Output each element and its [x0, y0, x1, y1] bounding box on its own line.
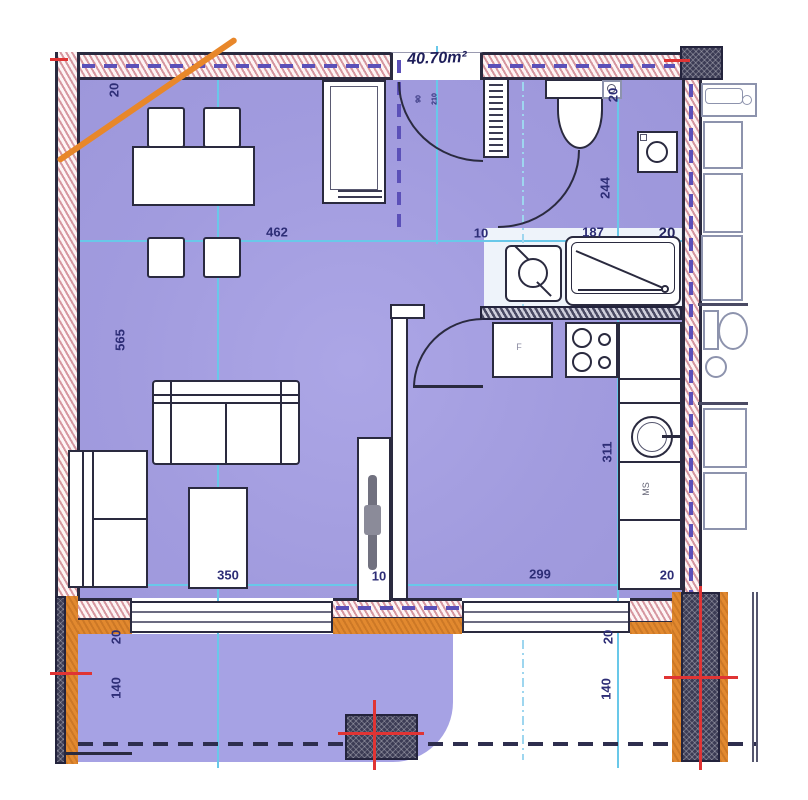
dim-balcony-right-wall: 20: [602, 630, 615, 644]
dim-wall-top-right: 20: [659, 226, 676, 241]
balcony-bottom-edge-left: [64, 752, 132, 755]
stove-burner: [572, 352, 592, 372]
wall-bath-kitchen: [480, 306, 682, 320]
neighbor-wall-line: [698, 303, 748, 306]
dim-wall-top-left: 20: [108, 83, 121, 97]
dim-kitchen-bottom: 299: [529, 568, 551, 581]
sofa-armrest-right: [280, 382, 282, 463]
window-glazing-line: [132, 611, 331, 613]
bathtub-drain: [661, 285, 669, 293]
wall-right-centerline: [689, 84, 693, 596]
survey-mark-vertical-center: [373, 700, 376, 770]
armchair-back-line: [82, 452, 84, 586]
stove: [565, 322, 618, 378]
balcony-edge-hatch-left: [55, 596, 66, 764]
survey-mark-top-left: [50, 58, 68, 61]
dim-balcony-left-wall: 20: [110, 630, 123, 644]
window-kitchen: [462, 601, 630, 633]
survey-mark-horizontal-center: [338, 732, 424, 735]
wall-top-left-centerline: [60, 64, 385, 68]
window-glazing-line: [464, 611, 628, 613]
neighbor-fixture-knob: [742, 95, 752, 105]
kitchen-sink-tap: [662, 435, 680, 438]
fridge-label: F: [516, 342, 522, 352]
sofa-armrest-left: [170, 382, 172, 463]
sill-orange-middle: [333, 618, 462, 634]
stove-burner: [572, 328, 592, 348]
dining-chair: [147, 107, 185, 148]
dim-partition: 10: [372, 570, 386, 583]
dim-bath-depth: 244: [599, 177, 612, 199]
armchair-cushion-divider: [94, 518, 146, 520]
window-living-left: [130, 601, 333, 633]
dining-table: [132, 146, 255, 206]
balcony-column-center: [345, 714, 418, 760]
partition-wall: [391, 317, 408, 600]
neighbor-fixture: [701, 235, 743, 301]
sofa-seat-divider: [225, 402, 227, 463]
floor-plan-canvas: 40.70m² 90 210 462 10 187 20 350 10 299 …: [0, 0, 808, 800]
neighbor-toilet-bowl: [718, 312, 748, 350]
stove-burner: [598, 356, 611, 369]
area-label: 40.70m²: [407, 49, 467, 69]
bathtub-bottom-line: [578, 289, 664, 291]
dim-balcony-right-depth: 140: [600, 678, 613, 700]
washbasin-bowl: [518, 258, 548, 288]
sofa-back-line: [154, 394, 298, 396]
stove-burner: [598, 333, 611, 346]
window-glazing-line: [132, 621, 331, 623]
bathroom-door-leaf: [489, 84, 503, 152]
neighbor-fixture: [703, 472, 747, 530]
toilet-cistern: [545, 79, 605, 99]
survey-mark-left: [50, 672, 92, 675]
dining-chair: [147, 237, 185, 278]
counter-divider: [620, 402, 680, 404]
neighbor-fixture-inner: [705, 88, 743, 104]
dim-hall-width: 10: [474, 227, 488, 240]
dim-kitchen-depth: 311: [601, 442, 614, 463]
washing-machine-panel: [640, 134, 647, 141]
neighbor-wall-line: [698, 402, 748, 405]
wall-top-right-centerline: [488, 64, 675, 68]
dim-bath-width: 187: [582, 226, 604, 239]
neighbor-fixture: [703, 173, 743, 233]
fridge: [492, 322, 553, 378]
dim-balcony-left-depth: 140: [110, 677, 123, 699]
entry-door-height-label: 210: [432, 93, 439, 105]
dim-wall-bottom-right: 20: [660, 569, 674, 582]
dining-chair: [203, 237, 241, 278]
dim-living-width: 462: [266, 226, 288, 239]
neighbor-basin: [705, 356, 727, 378]
balcony-rail-right: [752, 592, 758, 762]
wardrobe-rail: [338, 190, 382, 198]
wardrobe-inner-line: [330, 86, 378, 190]
balcony-edge-orange-left: [66, 596, 78, 764]
survey-mark-horizontal-right: [664, 676, 738, 679]
kitchen-counter-corner: [618, 322, 682, 380]
entry-door-width-label: 90: [416, 95, 423, 103]
tv-stand: [364, 505, 381, 535]
dim-wc-side: 20: [607, 88, 620, 102]
survey-mark-top-right: [664, 59, 690, 62]
neighbor-fixture: [703, 121, 743, 169]
hall-door-leaf: [413, 385, 483, 388]
neighbor-fixture: [703, 408, 747, 468]
kitchen-ms-label: MS: [641, 482, 651, 496]
dining-chair: [203, 107, 241, 148]
counter-divider: [620, 461, 680, 463]
dim-living-bottom: 350: [217, 569, 239, 582]
washing-machine-drum: [646, 141, 668, 163]
dim-living-height: 565: [114, 329, 127, 351]
window-glazing-line: [464, 621, 628, 623]
corner-column-top-right: [680, 46, 723, 80]
wall-bottom-middle-centerline: [336, 606, 459, 610]
counter-divider: [620, 519, 680, 521]
neighbor-toilet-tank: [703, 310, 719, 350]
